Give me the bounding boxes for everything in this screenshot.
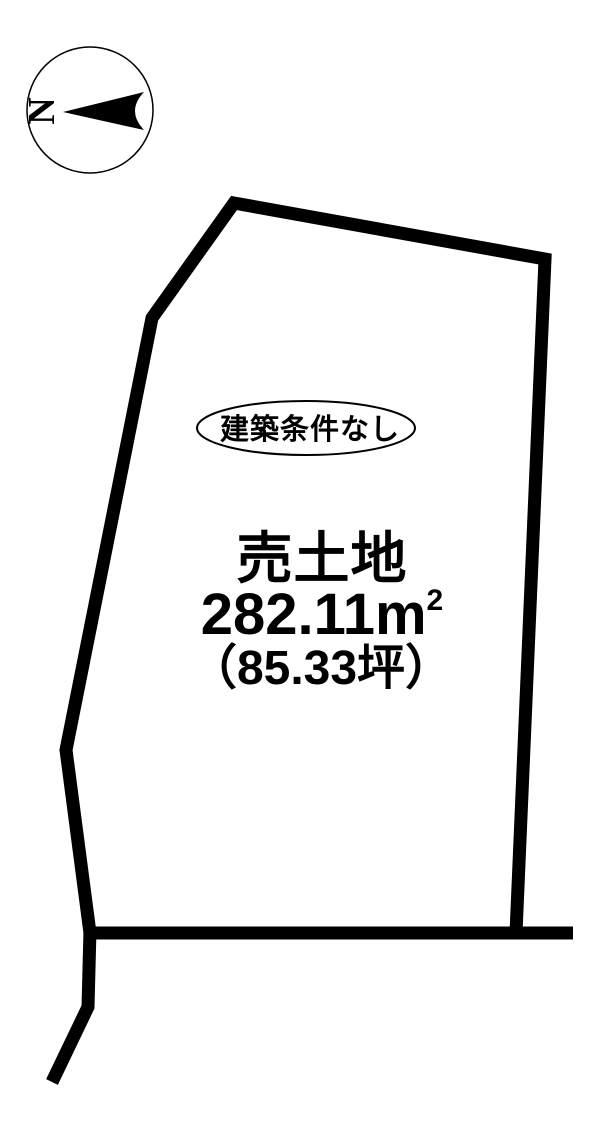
site-plan-svg: N 建築条件なし 売土地 282.11m2 （85.33坪） bbox=[0, 0, 600, 1138]
area-sqm-superscript: 2 bbox=[427, 584, 444, 617]
area-tsubo-label: （85.33坪） bbox=[189, 642, 453, 695]
land-plot-diagram: N 建築条件なし 売土地 282.11m2 （85.33坪） bbox=[0, 0, 600, 1138]
area-sqm-value: 282.11m bbox=[201, 582, 427, 647]
listing-type-label: 売土地 bbox=[237, 527, 408, 590]
condition-badge-label: 建築条件なし bbox=[220, 412, 400, 446]
area-sqm-label: 282.11m2 bbox=[201, 582, 443, 647]
compass-north-label: N bbox=[21, 97, 63, 124]
condition-badge: 建築条件なし bbox=[197, 401, 415, 455]
